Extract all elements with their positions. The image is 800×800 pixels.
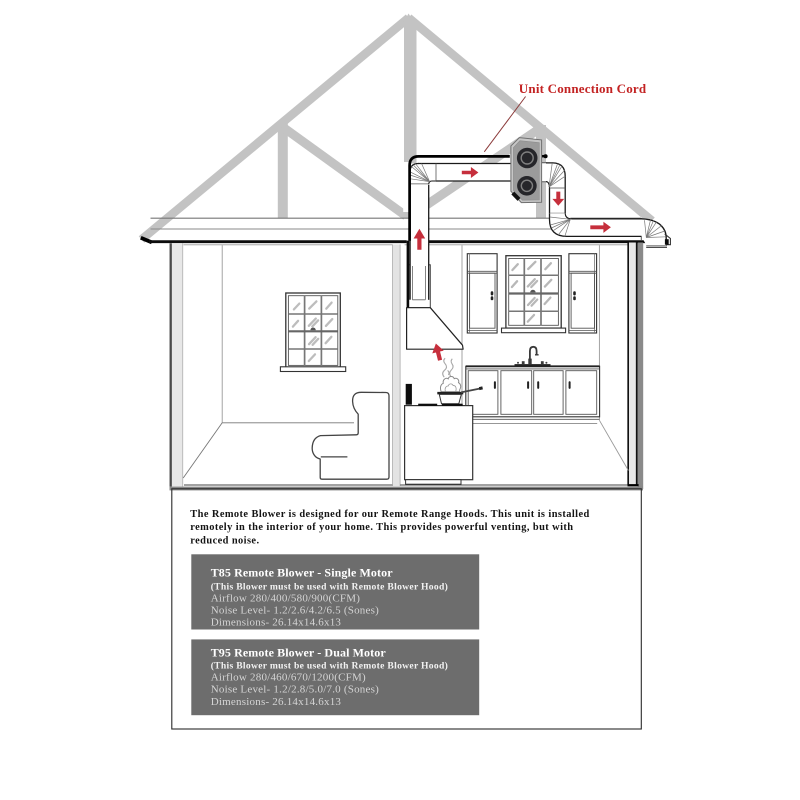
svg-text:Noise Level- 1.2/2.8/5.0/7.0 (: Noise Level- 1.2/2.8/5.0/7.0 (Sones) bbox=[211, 684, 379, 696]
svg-text:T85 Remote Blower - Single Mot: T85 Remote Blower - Single Motor bbox=[211, 566, 394, 580]
svg-text:(This Blower must be used with: (This Blower must be used with Remote Bl… bbox=[211, 581, 448, 592]
svg-text:reduced noise.: reduced noise. bbox=[190, 535, 259, 546]
svg-text:Unit Connection Cord: Unit Connection Cord bbox=[519, 81, 647, 96]
svg-text:(This Blower must be used with: (This Blower must be used with Remote Bl… bbox=[211, 660, 448, 671]
svg-text:The Remote Blower is designed: The Remote Blower is designed for our Re… bbox=[190, 509, 589, 520]
svg-text:Dimensions- 26.14x14.6x13: Dimensions- 26.14x14.6x13 bbox=[211, 617, 342, 629]
svg-text:remotely in the interior of yo: remotely in the interior of your home. T… bbox=[190, 522, 573, 533]
svg-text:Dimensions- 26.14x14.6x13: Dimensions- 26.14x14.6x13 bbox=[211, 696, 342, 708]
svg-text:Noise Level- 1.2/2.6/4.2/6.5 (: Noise Level- 1.2/2.6/4.2/6.5 (Sones) bbox=[211, 605, 379, 617]
svg-text:Airflow 280/460/670/1200(CFM): Airflow 280/460/670/1200(CFM) bbox=[211, 672, 366, 684]
svg-text:T95 Remote Blower - Dual Motor: T95 Remote Blower - Dual Motor bbox=[211, 646, 387, 660]
svg-text:Airflow 280/400/580/900(CFM): Airflow 280/400/580/900(CFM) bbox=[211, 592, 361, 604]
